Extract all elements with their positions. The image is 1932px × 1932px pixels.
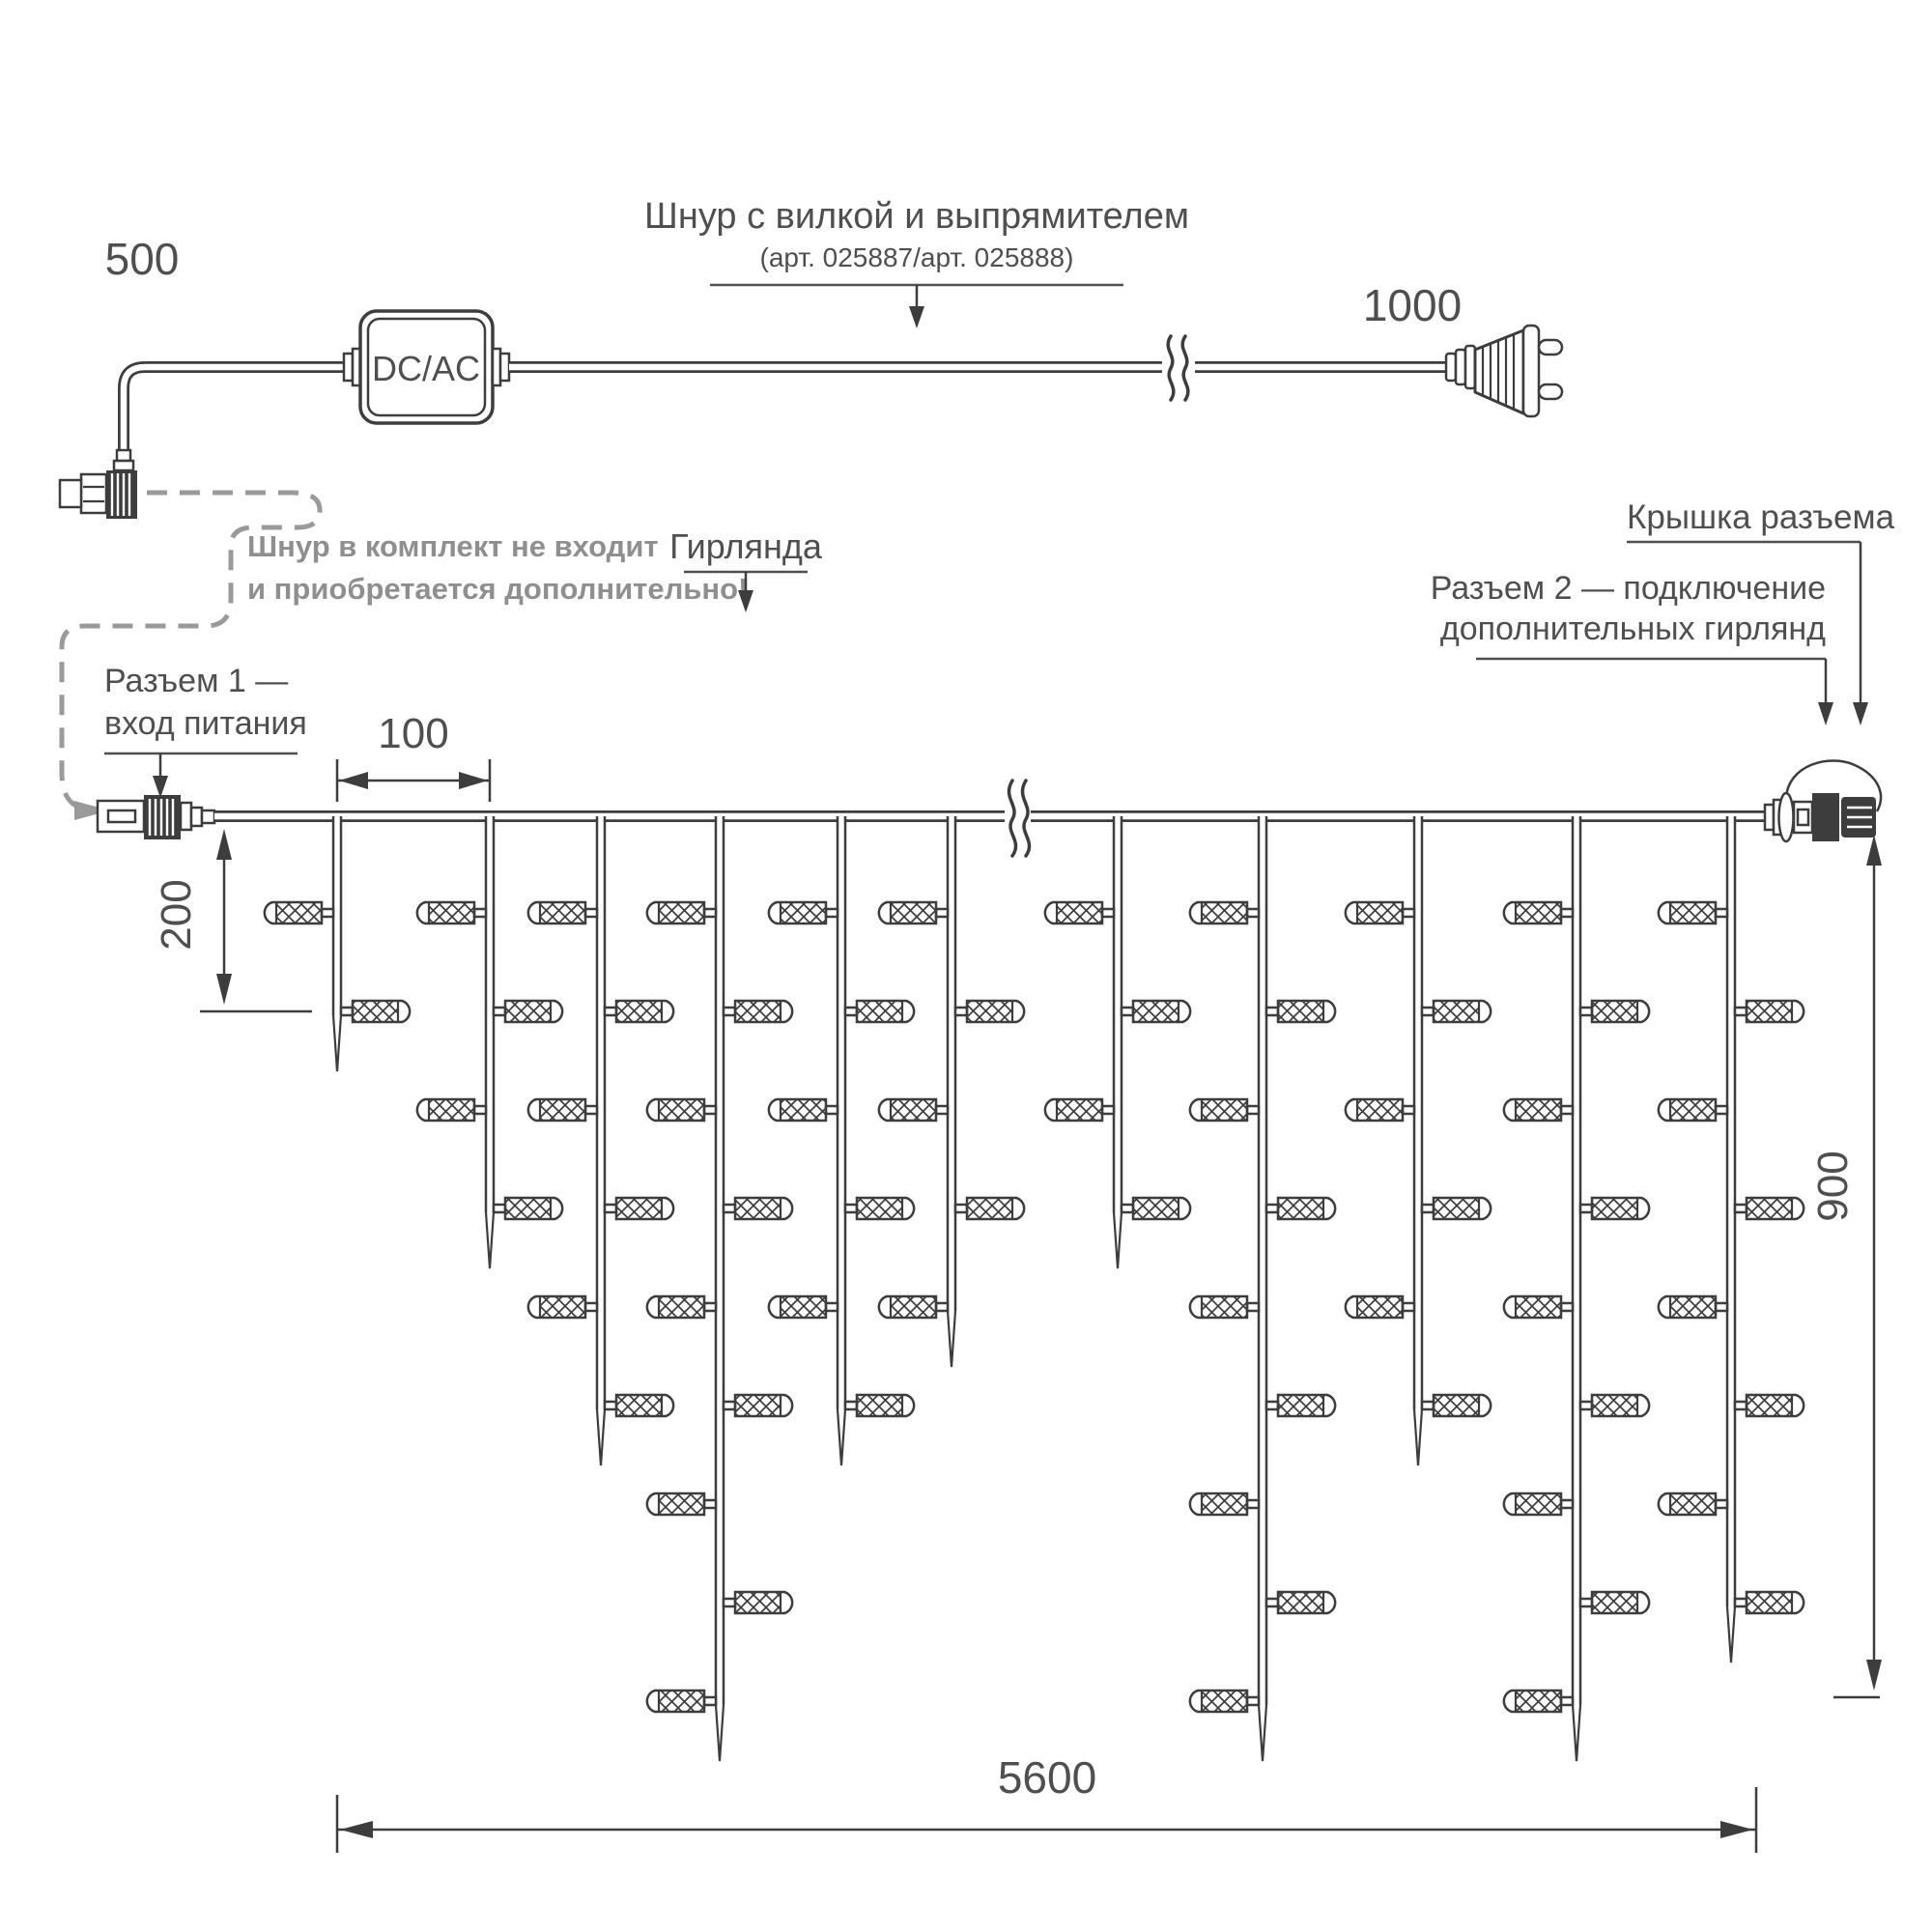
led-bulb	[341, 1001, 410, 1022]
led-bulb	[417, 902, 486, 923]
led-bulb	[1266, 1198, 1335, 1219]
led-bulb	[1504, 1493, 1573, 1515]
cord-subtitle: (арт. 025887/арт. 025888)	[760, 242, 1074, 272]
led-bulb	[1580, 1198, 1649, 1219]
plug-pin-top	[1539, 340, 1562, 355]
drop-tip	[838, 1409, 845, 1465]
led-bulb	[724, 1395, 792, 1416]
connector1-label-line1: Разъем 1 —	[104, 663, 288, 699]
note-line1: Шнур в комплект не входит	[247, 529, 659, 563]
garland-wiring-diagram: 500 DC/AC	[0, 0, 1932, 1932]
drop-tip	[597, 1409, 605, 1465]
led-bulb	[845, 1395, 914, 1416]
dimension-5600: 5600	[337, 1752, 1756, 1853]
led-bulb	[494, 1001, 562, 1022]
drop-tip	[948, 1311, 955, 1367]
led-bulb	[1659, 1493, 1727, 1515]
led-bulb	[647, 1493, 716, 1515]
drop-tip	[1114, 1212, 1122, 1268]
led-bulb	[1735, 1001, 1804, 1022]
dimension-900-value: 900	[1809, 1151, 1857, 1221]
garland-drop-7	[1045, 816, 1190, 1268]
garland-drop-11	[1659, 816, 1804, 1662]
led-bulb	[1659, 1099, 1727, 1121]
led-bulb	[1504, 1690, 1573, 1712]
led-bulb	[528, 1099, 597, 1121]
garland-output-connector	[1765, 760, 1881, 841]
garland-drop-3	[528, 816, 673, 1465]
garland-drop-2	[417, 816, 562, 1268]
cord-left-cable	[124, 367, 359, 452]
led-bulb	[1190, 1296, 1259, 1318]
led-bulb	[1504, 1099, 1573, 1121]
led-bulb	[417, 1099, 486, 1121]
garland-input-connector	[98, 795, 214, 839]
led-bulb	[724, 1198, 792, 1219]
connector1-label-line2: вход питания	[104, 705, 307, 742]
cable-length-1000: 1000	[1363, 280, 1462, 330]
garland-drop-10	[1504, 816, 1649, 1761]
led-bulb	[605, 1198, 673, 1219]
cord-title: Шнур с вилкой и выпрямителем	[644, 196, 1189, 237]
led-bulb	[1190, 1099, 1259, 1121]
dimension-100: 100	[337, 710, 490, 802]
garland-drop-1	[265, 816, 410, 1071]
led-bulb	[1735, 1198, 1804, 1219]
power-plug	[1446, 326, 1562, 416]
led-bulb	[1045, 902, 1114, 923]
led-bulb	[1735, 1592, 1804, 1613]
led-bulb	[1735, 1395, 1804, 1416]
connector1-callout: Разъем 1 — вход питания	[104, 663, 307, 798]
led-bulb	[769, 1099, 838, 1121]
led-bulb	[1659, 1296, 1727, 1318]
led-bulb	[769, 902, 838, 923]
led-bulb	[724, 1592, 792, 1613]
led-bulb	[879, 1296, 948, 1318]
power-cord-assembly: 500 DC/AC	[60, 196, 1562, 519]
led-bulb	[1346, 902, 1414, 923]
dimension-900: 900	[1809, 835, 1882, 1697]
led-bulb	[724, 1001, 792, 1022]
garland-drop-8	[1190, 816, 1335, 1761]
led-bulb	[1190, 1493, 1259, 1515]
connector2-body	[1812, 793, 1839, 841]
drop-tip	[1727, 1606, 1735, 1662]
drop-tip	[486, 1212, 494, 1268]
note-line2: и приобретается дополнительно!	[247, 572, 748, 606]
cord-end-connector	[60, 450, 137, 519]
led-bulb	[1659, 902, 1727, 923]
cable-length-500: 500	[105, 234, 180, 284]
led-bulb	[1266, 1592, 1335, 1613]
led-bulb	[1422, 1395, 1491, 1416]
garland-drop-9	[1346, 816, 1491, 1465]
led-bulb	[647, 1296, 716, 1318]
led-bulb	[647, 1099, 716, 1121]
led-bulb	[1580, 1001, 1649, 1022]
garland-label: Гирлянда	[669, 526, 823, 566]
connector2-callout: Разъем 2 — подключение дополнительных ги…	[1431, 570, 1833, 725]
led-bulb	[845, 1001, 914, 1022]
led-bulb	[1580, 1592, 1649, 1613]
garland-main-cable	[214, 781, 1765, 856]
led-bulb	[265, 902, 333, 923]
converter-label: DC/AC	[372, 349, 480, 388]
drop-tip	[716, 1705, 724, 1761]
drop-tip	[333, 1015, 341, 1071]
drop-tip	[1414, 1409, 1422, 1465]
dc-ac-converter: DC/AC	[344, 311, 509, 423]
led-bulb	[845, 1198, 914, 1219]
connector-cap-label: Крышка разъема	[1627, 498, 1895, 536]
garland-drop-6	[879, 816, 1024, 1367]
dimension-100-value: 100	[378, 710, 448, 757]
led-bulb	[605, 1395, 673, 1416]
led-bulb	[528, 902, 597, 923]
cord-title-callout: Шнур с вилкой и выпрямителем (арт. 02588…	[644, 196, 1189, 328]
led-bulb	[1504, 1296, 1573, 1318]
plug-pin-bottom	[1539, 384, 1562, 399]
garland-drops	[265, 816, 1804, 1761]
led-bulb	[879, 1099, 948, 1121]
led-bulb	[1504, 902, 1573, 923]
garland-drop-4	[647, 816, 792, 1761]
connector2-label-line2: дополнительных гирлянд	[1440, 611, 1826, 647]
led-bulb	[1346, 1296, 1414, 1318]
connector2-label-line1: Разъем 2 — подключение	[1431, 570, 1826, 607]
drop-tip	[1573, 1705, 1580, 1761]
led-bulb	[1266, 1395, 1335, 1416]
led-bulb	[494, 1198, 562, 1219]
dimension-5600-value: 5600	[998, 1752, 1096, 1803]
led-bulb	[879, 902, 948, 923]
led-bulb	[1422, 1198, 1491, 1219]
led-bulb	[605, 1001, 673, 1022]
led-bulb	[955, 1198, 1024, 1219]
led-bulb	[1422, 1001, 1491, 1022]
led-bulb	[1045, 1099, 1114, 1121]
led-bulb	[1122, 1198, 1190, 1219]
cable-break-symbol-garland	[1009, 781, 1029, 856]
cable-break-symbol-top	[1168, 336, 1188, 400]
led-bulb	[1122, 1001, 1190, 1022]
led-bulb	[647, 902, 716, 923]
led-bulb	[1190, 902, 1259, 923]
led-bulb	[647, 1690, 716, 1712]
led-bulb	[528, 1296, 597, 1318]
led-bulb	[769, 1296, 838, 1318]
led-bulb	[955, 1001, 1024, 1022]
led-bulb	[1190, 1690, 1259, 1712]
dimension-200-value: 200	[153, 879, 200, 950]
drop-tip	[1259, 1705, 1266, 1761]
led-bulb	[1266, 1001, 1335, 1022]
led-bulb	[1580, 1395, 1649, 1416]
led-bulb	[1346, 1099, 1414, 1121]
diagram-canvas: 500 DC/AC	[0, 0, 1932, 1932]
